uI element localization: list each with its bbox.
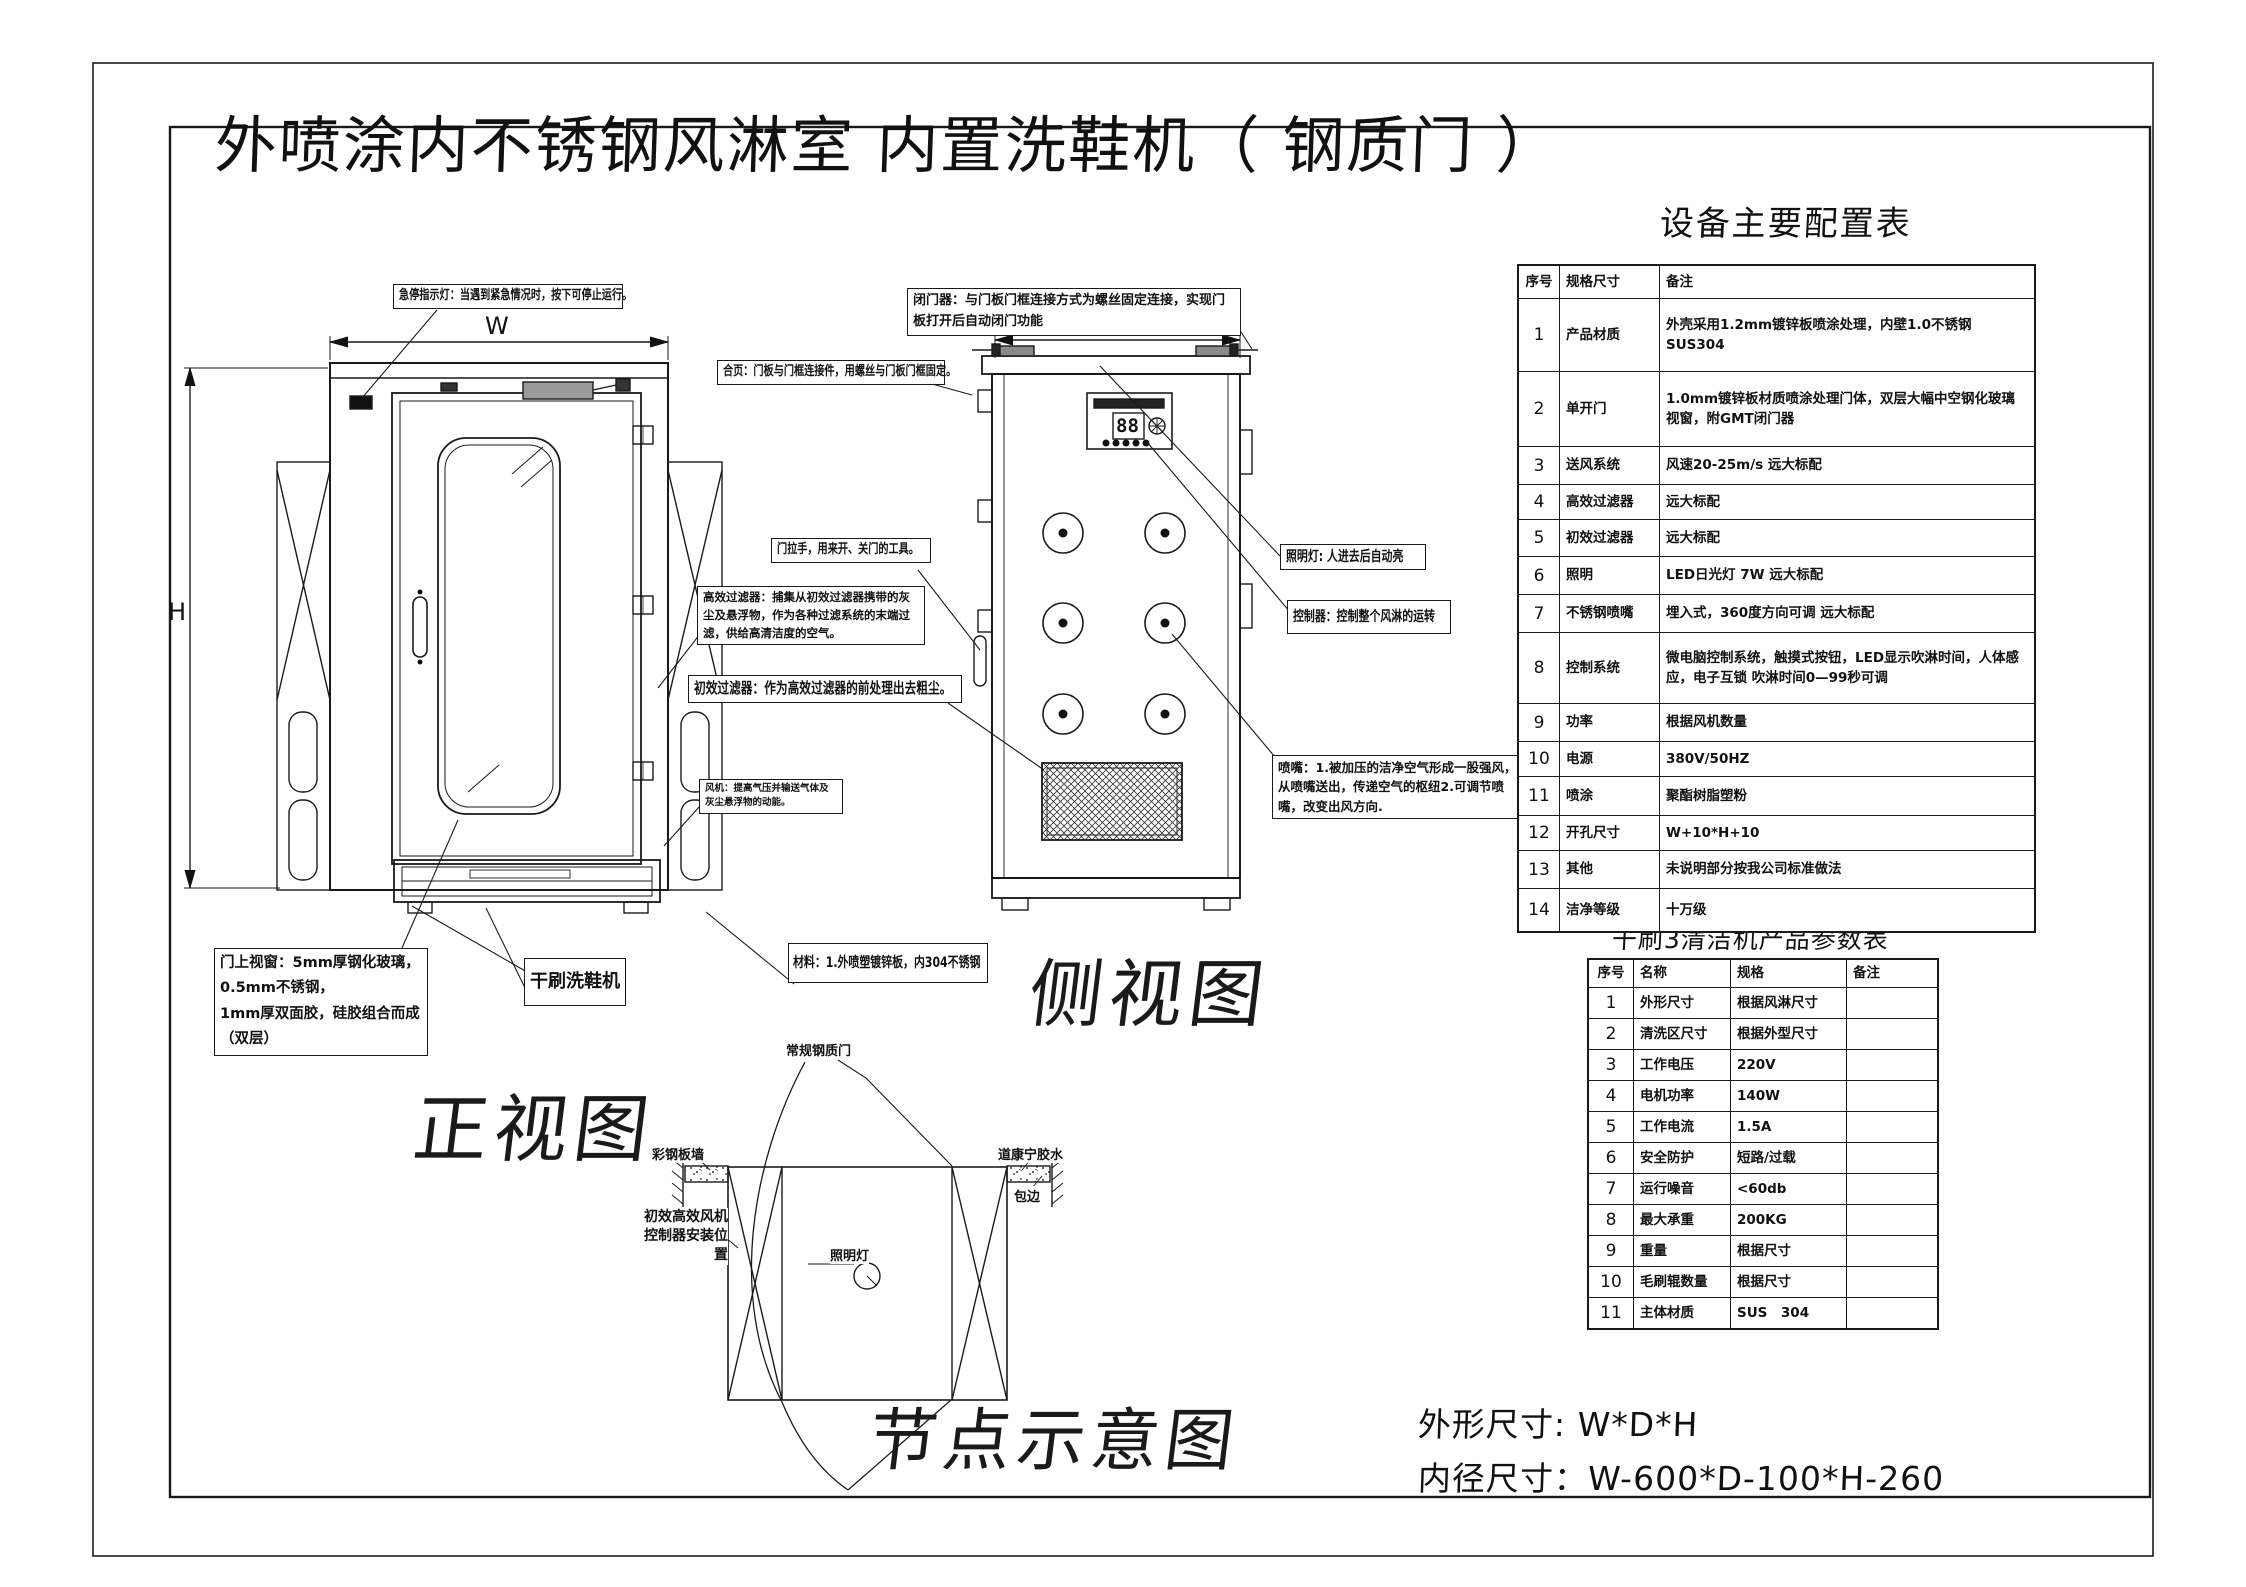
table-cell: 产品材质: [1559, 299, 1659, 371]
table-row: 1产品材质外壳采用1.2mm镀锌板喷涂处理，内壁1.0不锈钢SUS304: [1519, 298, 2034, 371]
table-cell: 照明: [1559, 557, 1659, 594]
panel-display: 88: [1116, 415, 1139, 437]
table-cell: 外壳采用1.2mm镀锌板喷涂处理，内壁1.0不锈钢SUS304: [1659, 299, 2030, 371]
table-row: 10电源380V/50HZ: [1519, 741, 2034, 776]
table-cell: 十万级: [1659, 889, 2030, 931]
table-cell: 根据外型尺寸: [1730, 1019, 1846, 1049]
node-label-edge: 包边: [1014, 1186, 1040, 1205]
callout-emergency-stop: 急停指示灯：当遇到紧急情况时，按下可停止运行。: [393, 284, 623, 309]
table-header-row: 序号规格尺寸备注: [1519, 266, 2034, 298]
callout-door-closer: 闭门器：与门板门框连接方式为螺丝固定连接，实现门板打开后自动闭门功能: [907, 288, 1241, 336]
callout-light: 照明灯: 人进去后自动亮: [1280, 544, 1426, 570]
table-row: 2清洗区尺寸根据外型尺寸: [1589, 1018, 1937, 1049]
table-cell: 200KG: [1730, 1205, 1846, 1235]
table-cell: SUS 304: [1730, 1298, 1846, 1328]
table-cell: LED日光灯 7W 远大标配: [1659, 557, 2030, 594]
table-cell: 11: [1519, 777, 1559, 815]
table-cell: 聚酯树脂塑粉: [1659, 777, 2030, 815]
callout-pre-filter: 初效过滤器：作为高效过滤器的前处理出去粗尘。: [688, 675, 962, 703]
table-cell: [1846, 1019, 1931, 1049]
table-cell: 控制系统: [1559, 633, 1659, 703]
table-cell: 根据尺寸: [1730, 1267, 1846, 1297]
table-header-cell: 规格尺寸: [1559, 266, 1659, 298]
node-label-steel-door: 常规钢质门: [786, 1040, 851, 1059]
table-cell: 运行噪音: [1633, 1174, 1730, 1204]
table-cell: 喷涂: [1559, 777, 1659, 815]
table-header-row: 序号名称规格备注: [1589, 960, 1937, 987]
table-cell: 1: [1519, 299, 1559, 371]
table-cell: 根据尺寸: [1730, 1236, 1846, 1266]
node-label-glue: 道康宁胶水: [998, 1144, 1063, 1163]
table-cell: 高效过滤器: [1559, 485, 1659, 519]
table-cell: 220V: [1730, 1050, 1846, 1080]
config-table: 序号规格尺寸备注1产品材质外壳采用1.2mm镀锌板喷涂处理，内壁1.0不锈钢SU…: [1517, 264, 2036, 933]
inner-size-text: 内径尺寸：W-600*D-100*H-260: [1417, 1452, 1945, 1500]
table-cell: 未说明部分按我公司标准做法: [1659, 851, 2030, 888]
table-cell: 6: [1519, 557, 1559, 594]
table-cell: 14: [1519, 889, 1559, 931]
table-cell: 9: [1519, 704, 1559, 741]
callout-door-handle: 门拉手，用来开、关门的工具。: [771, 538, 931, 563]
config-table-title: 设备主要配置表: [1659, 196, 1914, 245]
node-label-install-position: 初效高效风机 控制器安装位 置: [638, 1208, 728, 1265]
table-cell: [1846, 1236, 1931, 1266]
table-cell: 4: [1589, 1081, 1633, 1111]
table-cell: 3: [1519, 447, 1559, 484]
table-row: 4电机功率140W: [1589, 1080, 1937, 1111]
table-row: 1外形尺寸根据风淋尺寸: [1589, 987, 1937, 1018]
drawing-sheet: 外喷涂内不锈钢风淋室 内置洗鞋机（ 钢质门 ） W H D 88 急停指示灯：当…: [0, 0, 2246, 1587]
table-cell: 电源: [1559, 742, 1659, 776]
table-cell: 12: [1519, 816, 1559, 850]
table-cell: 不锈钢喷嘴: [1559, 595, 1659, 632]
table-row: 8控制系统微电脑控制系统，触摸式按钮，LED显示吹淋时间，人体感应，电子互锁 吹…: [1519, 632, 2034, 703]
table-cell: 1.5A: [1730, 1112, 1846, 1142]
table-cell: 送风系统: [1559, 447, 1659, 484]
table-cell: 远大标配: [1659, 520, 2030, 556]
table-cell: 功率: [1559, 704, 1659, 741]
table-row: 7运行噪音<60db: [1589, 1173, 1937, 1204]
table-cell: 6: [1589, 1143, 1633, 1173]
table-header-cell: 备注: [1846, 960, 1931, 987]
table-cell: 工作电压: [1633, 1050, 1730, 1080]
table-cell: [1846, 1174, 1931, 1204]
table-cell: 5: [1589, 1112, 1633, 1142]
table-row: 6安全防护短路/过载: [1589, 1142, 1937, 1173]
callout-nozzle: 喷嘴：1.被加压的洁净空气形成一股强风，从喷嘴送出，传递空气的枢纽2.可调节喷嘴…: [1272, 755, 1524, 819]
sheet-title: 外喷涂内不锈钢风淋室 内置洗鞋机（ 钢质门 ）: [213, 95, 1561, 185]
table-header-cell: 序号: [1589, 960, 1633, 987]
table-cell: [1846, 1143, 1931, 1173]
table-cell: [1846, 1298, 1931, 1328]
table-row: 5初效过滤器远大标配: [1519, 519, 2034, 556]
table-row: 3送风系统风速20-25m/s 远大标配: [1519, 446, 2034, 484]
table-cell: 根据风淋尺寸: [1730, 988, 1846, 1018]
table-row: 14洁净等级十万级: [1519, 888, 2034, 931]
table-cell: 2: [1589, 1019, 1633, 1049]
table-cell: 3: [1589, 1050, 1633, 1080]
table-row: 11喷涂聚酯树脂塑粉: [1519, 776, 2034, 815]
table-cell: 外形尺寸: [1633, 988, 1730, 1018]
table-cell: 主体材质: [1633, 1298, 1730, 1328]
table-cell: [1846, 988, 1931, 1018]
callout-fan: 风机：提高气压并输送气体及灰尘悬浮物的动能。: [699, 779, 843, 814]
table-cell: 洁净等级: [1559, 889, 1659, 931]
table-cell: 13: [1519, 851, 1559, 888]
table-row: 10毛刷辊数量根据尺寸: [1589, 1266, 1937, 1297]
table-header-cell: 名称: [1633, 960, 1730, 987]
table-cell: <60db: [1730, 1174, 1846, 1204]
table-cell: 安全防护: [1633, 1143, 1730, 1173]
table-cell: 单开门: [1559, 372, 1659, 446]
table-row: 2单开门1.0mm镀锌板材质喷涂处理门体，双层大幅中空钢化玻璃视窗，附GMT闭门…: [1519, 371, 2034, 446]
table-row: 9重量根据尺寸: [1589, 1235, 1937, 1266]
callout-hepa-filter: 高效过滤器：捕集从初效过滤器携带的灰尘及悬浮物，作为各种过滤系统的末端过滤，供给…: [697, 586, 925, 645]
table-cell: [1846, 1267, 1931, 1297]
table-cell: 毛刷辊数量: [1633, 1267, 1730, 1297]
table-cell: 4: [1519, 485, 1559, 519]
callout-material: 材料：1.外喷塑镀锌板，内304不锈钢: [788, 943, 988, 983]
table-row: 6照明LED日光灯 7W 远大标配: [1519, 556, 2034, 594]
table-cell: 8: [1589, 1205, 1633, 1235]
table-cell: 微电脑控制系统，触摸式按钮，LED显示吹淋时间，人体感应，电子互锁 吹淋时间0—…: [1659, 633, 2030, 703]
table-cell: 1.0mm镀锌板材质喷涂处理门体，双层大幅中空钢化玻璃视窗，附GMT闭门器: [1659, 372, 2030, 446]
table-row: 13其他未说明部分按我公司标准做法: [1519, 850, 2034, 888]
param-table: 序号名称规格备注1外形尺寸根据风淋尺寸2清洗区尺寸根据外型尺寸3工作电压220V…: [1587, 958, 1939, 1330]
overall-size-text: 外形尺寸: W*D*H: [1417, 1398, 1699, 1446]
dim-w-label: W: [485, 312, 509, 340]
table-cell: 11: [1589, 1298, 1633, 1328]
table-row: 4高效过滤器远大标配: [1519, 484, 2034, 519]
callout-controller: 控制器：控制整个风淋的运转: [1287, 600, 1451, 634]
table-header-cell: 备注: [1659, 266, 2030, 298]
node-view-label: 节点示意图: [864, 1385, 1246, 1484]
table-cell: 开孔尺寸: [1559, 816, 1659, 850]
table-cell: 7: [1519, 595, 1559, 632]
table-cell: 5: [1519, 520, 1559, 556]
table-cell: 清洗区尺寸: [1633, 1019, 1730, 1049]
table-cell: 工作电流: [1633, 1112, 1730, 1142]
table-row: 5工作电流1.5A: [1589, 1111, 1937, 1142]
table-cell: 埋入式，360度方向可调 远大标配: [1659, 595, 2030, 632]
table-row: 12开孔尺寸W+10*H+10: [1519, 815, 2034, 850]
table-cell: 1: [1589, 988, 1633, 1018]
table-cell: 2: [1519, 372, 1559, 446]
table-cell: 根据风机数量: [1659, 704, 2030, 741]
table-row: 7不锈钢喷嘴埋入式，360度方向可调 远大标配: [1519, 594, 2034, 632]
table-cell: 8: [1519, 633, 1559, 703]
table-cell: 10: [1589, 1267, 1633, 1297]
table-row: 9功率根据风机数量: [1519, 703, 2034, 741]
callout-door-window: 门上视窗：5mm厚钢化玻璃， 0.5mm不锈钢， 1mm厚双面胶，硅胶组合而成（…: [214, 948, 428, 1056]
callout-hinge: 合页：门板与门框连接件，用螺丝与门板门框固定。: [717, 360, 945, 385]
table-cell: 重量: [1633, 1236, 1730, 1266]
table-cell: 其他: [1559, 851, 1659, 888]
table-header-cell: 序号: [1519, 266, 1559, 298]
node-label-wall: 彩钢板墙: [652, 1144, 704, 1163]
table-cell: 短路/过载: [1730, 1143, 1846, 1173]
dim-h-label: H: [168, 598, 186, 626]
table-cell: W+10*H+10: [1659, 816, 2030, 850]
table-row: 11主体材质SUS 304: [1589, 1297, 1937, 1328]
table-cell: 最大承重: [1633, 1205, 1730, 1235]
table-row: 8最大承重200KG: [1589, 1204, 1937, 1235]
side-view-label: 侧视图: [1023, 935, 1276, 1042]
table-cell: [1846, 1081, 1931, 1111]
callout-shoe-machine: 干刷洗鞋机: [524, 958, 626, 1006]
table-cell: [1846, 1205, 1931, 1235]
table-cell: 10: [1519, 742, 1559, 776]
table-cell: 140W: [1730, 1081, 1846, 1111]
table-cell: 9: [1589, 1236, 1633, 1266]
table-cell: 380V/50HZ: [1659, 742, 2030, 776]
table-row: 3工作电压220V: [1589, 1049, 1937, 1080]
table-cell: 电机功率: [1633, 1081, 1730, 1111]
table-cell: 7: [1589, 1174, 1633, 1204]
table-cell: 远大标配: [1659, 485, 2030, 519]
node-label-lamp: 照明灯: [830, 1245, 869, 1264]
table-cell: 风速20-25m/s 远大标配: [1659, 447, 2030, 484]
table-cell: [1846, 1112, 1931, 1142]
front-view-label: 正视图: [408, 1070, 661, 1177]
table-header-cell: 规格: [1730, 960, 1846, 987]
table-cell: 初效过滤器: [1559, 520, 1659, 556]
table-cell: [1846, 1050, 1931, 1080]
